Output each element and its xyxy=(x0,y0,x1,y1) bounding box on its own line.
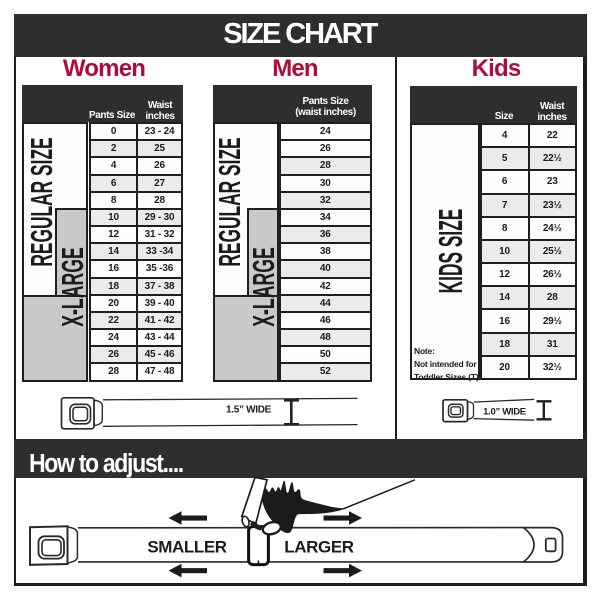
svg-text:1.0” WIDE: 1.0” WIDE xyxy=(483,407,526,418)
svg-text:SMALLER: SMALLER xyxy=(147,537,226,556)
svg-text:LARGER: LARGER xyxy=(284,537,354,556)
svg-text:1.5” WIDE: 1.5” WIDE xyxy=(226,405,272,416)
